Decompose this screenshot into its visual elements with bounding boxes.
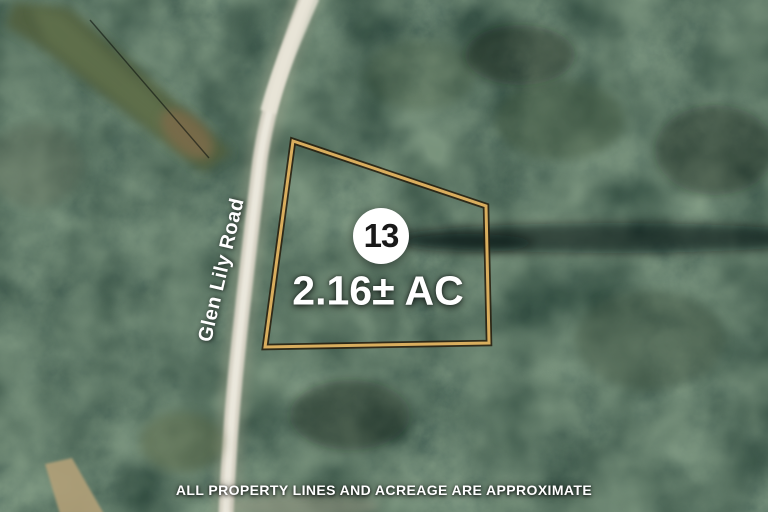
shadow-band-inner xyxy=(403,234,533,252)
property-listing-map: Glen Lily Road 13 2.16± AC ALL PROPERTY … xyxy=(0,0,768,512)
canopy-shadow-3 xyxy=(290,380,410,450)
canopy-highlight-1 xyxy=(495,80,625,160)
canopy-shadow-1 xyxy=(465,25,575,85)
satellite-imagery xyxy=(0,0,768,512)
canopy-highlight-2 xyxy=(575,290,725,390)
canopy-highlight-3 xyxy=(365,40,475,110)
grass-patch xyxy=(140,412,224,472)
